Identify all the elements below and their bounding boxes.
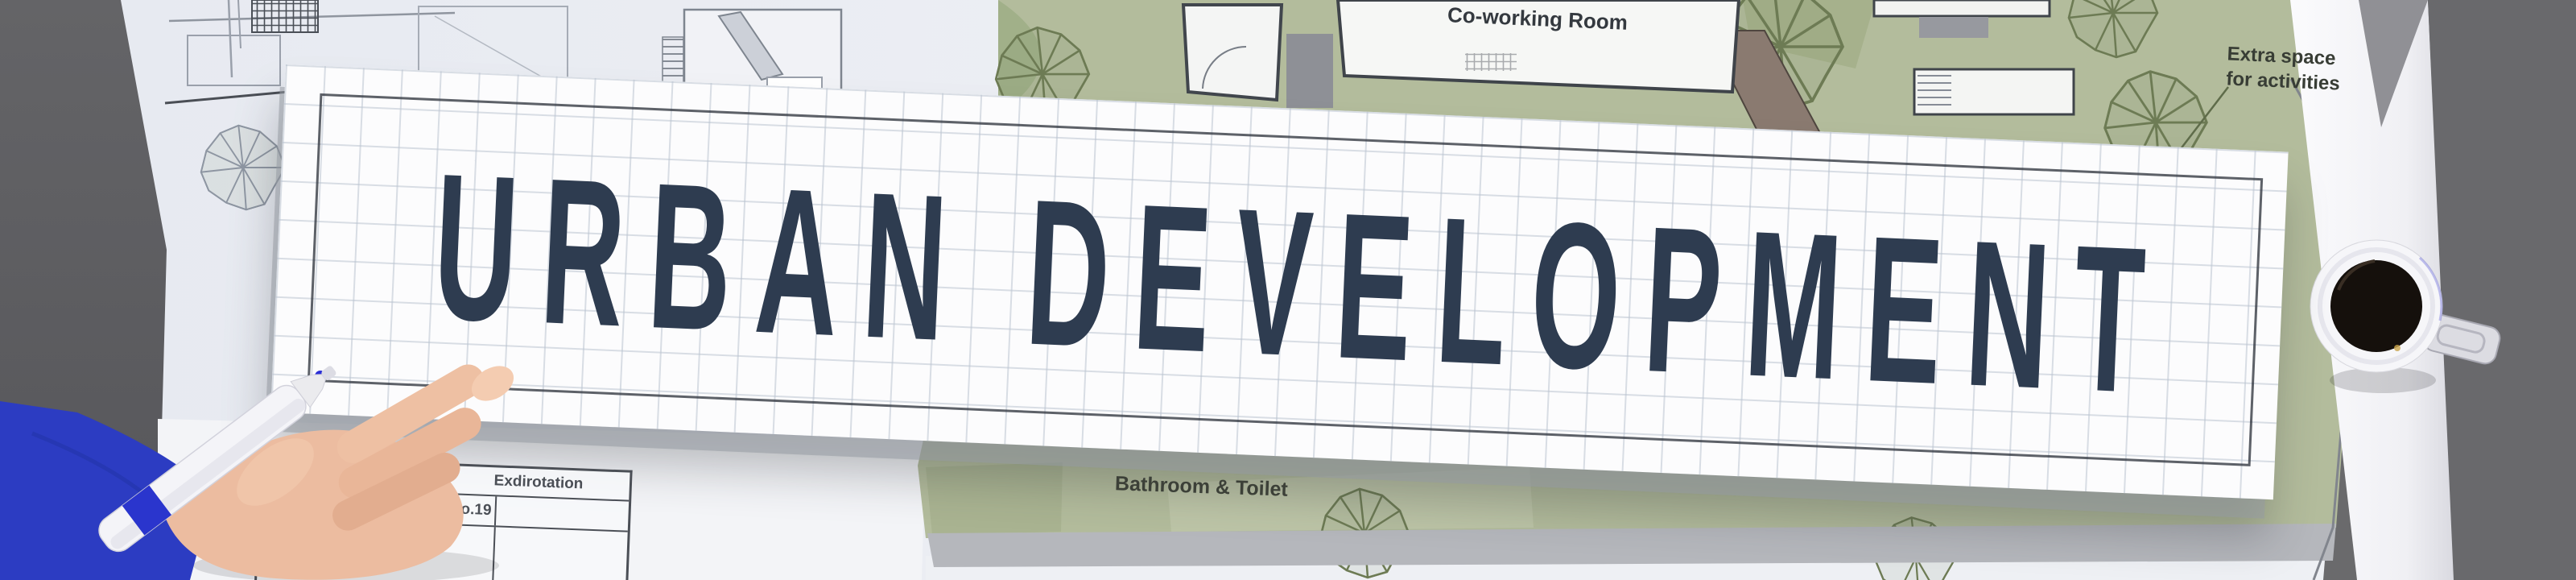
concrete-swatch bbox=[278, 539, 316, 578]
photo-banner: URBAN DEVELOPMENT Co-working Room Extra … bbox=[0, 0, 2576, 580]
titleblock-empty-cell bbox=[496, 496, 629, 530]
titleblock-sheet-number: No.19 bbox=[446, 495, 497, 525]
coffee bbox=[2330, 260, 2422, 352]
material-legend-label: Concrete bbox=[333, 549, 411, 574]
right-wall bbox=[2428, 0, 2576, 580]
room-label-extra-space: Extra space for activities bbox=[2226, 41, 2361, 97]
titleblock-section-label: Exdirotation bbox=[447, 466, 630, 500]
banner-title: URBAN DEVELOPMENT bbox=[430, 126, 2173, 441]
title-block-table: Pouhud esercitation Exdirotation Consect… bbox=[254, 456, 632, 580]
